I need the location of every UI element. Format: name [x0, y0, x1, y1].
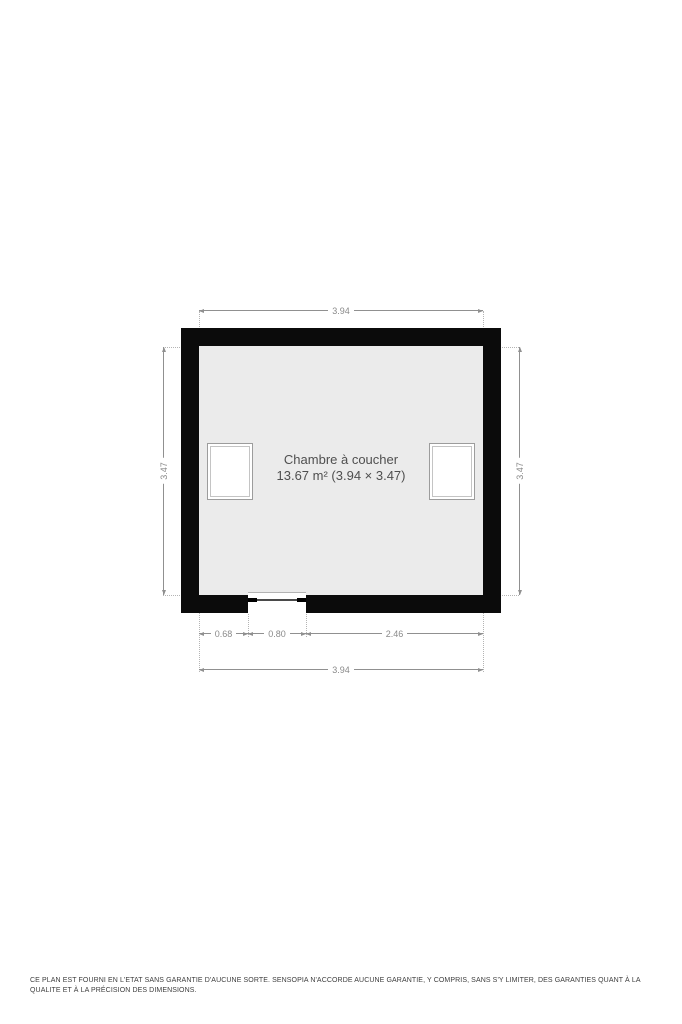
dimension-bottom-total-width: 3.94 [199, 665, 483, 674]
room-area: 13.67 m² (3.94 × 3.47) [199, 468, 483, 484]
dimension-value: 3.47 [159, 458, 169, 484]
room-name: Chambre à coucher [199, 452, 483, 468]
disclaimer-text: CE PLAN EST FOURNI EN L'ETAT SANS GARANT… [30, 976, 670, 996]
extension-line [483, 613, 484, 672]
window-jamb-left [248, 598, 257, 602]
dimension-bottom-right-segment: 2.46 [306, 629, 483, 638]
dimension-value: 0.68 [211, 629, 237, 639]
window-jamb-right [297, 598, 306, 602]
extension-line [163, 595, 182, 596]
dimension-value: 3.47 [515, 458, 525, 484]
dimension-value: 3.94 [328, 306, 354, 316]
dimension-value: 2.46 [382, 629, 408, 639]
dimension-bottom-opening-segment: 0.80 [248, 629, 306, 638]
dimension-right-height: 3.47 [515, 347, 524, 595]
dimension-left-height: 3.47 [159, 347, 168, 595]
extension-line [199, 613, 200, 672]
floorplan-page: Chambre à coucher 13.67 m² (3.94 × 3.47)… [0, 0, 682, 1024]
dimension-value: 0.80 [264, 629, 290, 639]
dimension-bottom-left-segment: 0.68 [199, 629, 248, 638]
dimension-value: 3.94 [328, 665, 354, 675]
extension-line [500, 595, 519, 596]
room-label: Chambre à coucher 13.67 m² (3.94 × 3.47) [199, 452, 483, 484]
dimension-top-width: 3.94 [199, 306, 483, 315]
extension-line [483, 311, 484, 329]
